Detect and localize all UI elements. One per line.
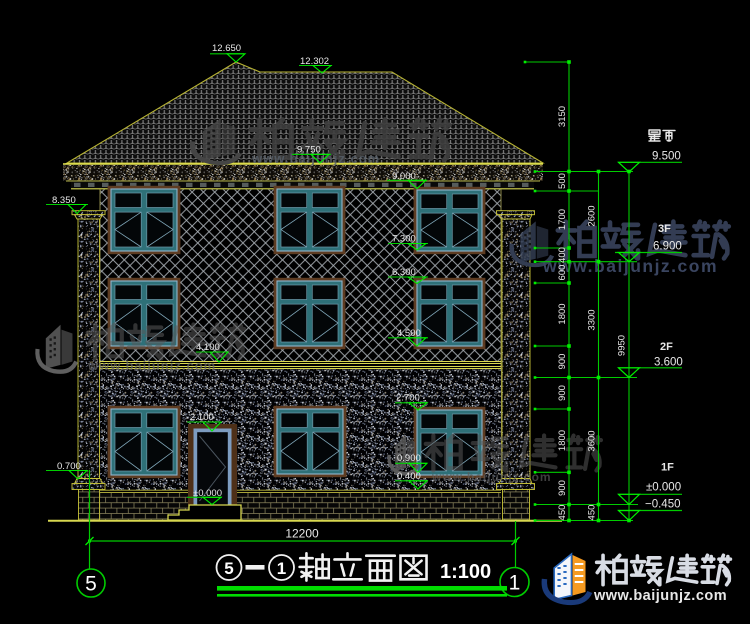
svg-text:3300: 3300 (587, 309, 598, 330)
svg-text:5: 5 (224, 559, 233, 578)
svg-text:www.baijunjz.com: www.baijunjz.com (431, 470, 552, 484)
svg-text:3F: 3F (658, 223, 671, 235)
svg-text:12200: 12200 (285, 527, 319, 541)
svg-text:4.100: 4.100 (196, 342, 220, 353)
svg-text:7.300: 7.300 (392, 234, 416, 245)
svg-text:1: 1 (509, 572, 521, 595)
svg-text:500: 500 (557, 173, 568, 189)
svg-text:2.700: 2.700 (396, 393, 420, 404)
svg-text:600: 600 (557, 265, 568, 281)
svg-text:450: 450 (557, 505, 568, 521)
svg-text:2600: 2600 (587, 205, 598, 226)
svg-text:5: 5 (85, 573, 97, 596)
svg-text:12.650: 12.650 (212, 43, 241, 54)
svg-text:1: 1 (277, 559, 286, 578)
svg-text:900: 900 (557, 385, 568, 401)
svg-text:9.500: 9.500 (652, 151, 681, 163)
svg-text:3600: 3600 (587, 430, 598, 451)
svg-text:www.baijunjz.com: www.baijunjz.com (542, 256, 718, 276)
svg-text:www.baijunjz.com: www.baijunjz.com (87, 358, 216, 373)
svg-text:1800: 1800 (557, 303, 568, 324)
svg-text:±0.000: ±0.000 (646, 482, 681, 494)
svg-text:1700: 1700 (557, 209, 568, 230)
svg-text:1F: 1F (661, 462, 674, 474)
svg-text:400: 400 (557, 247, 568, 263)
svg-text:450: 450 (587, 505, 598, 521)
svg-text:0.900: 0.900 (397, 453, 421, 464)
svg-text:6.300: 6.300 (392, 267, 416, 278)
svg-text:900: 900 (557, 354, 568, 370)
svg-text:6.900: 6.900 (653, 241, 682, 253)
svg-text:2.100: 2.100 (190, 412, 214, 423)
svg-text:9950: 9950 (617, 335, 628, 356)
svg-text:1:100: 1:100 (440, 561, 491, 583)
svg-text:3150: 3150 (557, 106, 568, 127)
svg-text:−0.450: −0.450 (645, 499, 681, 511)
svg-text:1800: 1800 (557, 430, 568, 451)
svg-text:3.600: 3.600 (654, 357, 683, 369)
svg-text:www.baijunjz.com: www.baijunjz.com (593, 588, 727, 604)
svg-text:2F: 2F (660, 341, 673, 353)
svg-text:900: 900 (557, 480, 568, 496)
